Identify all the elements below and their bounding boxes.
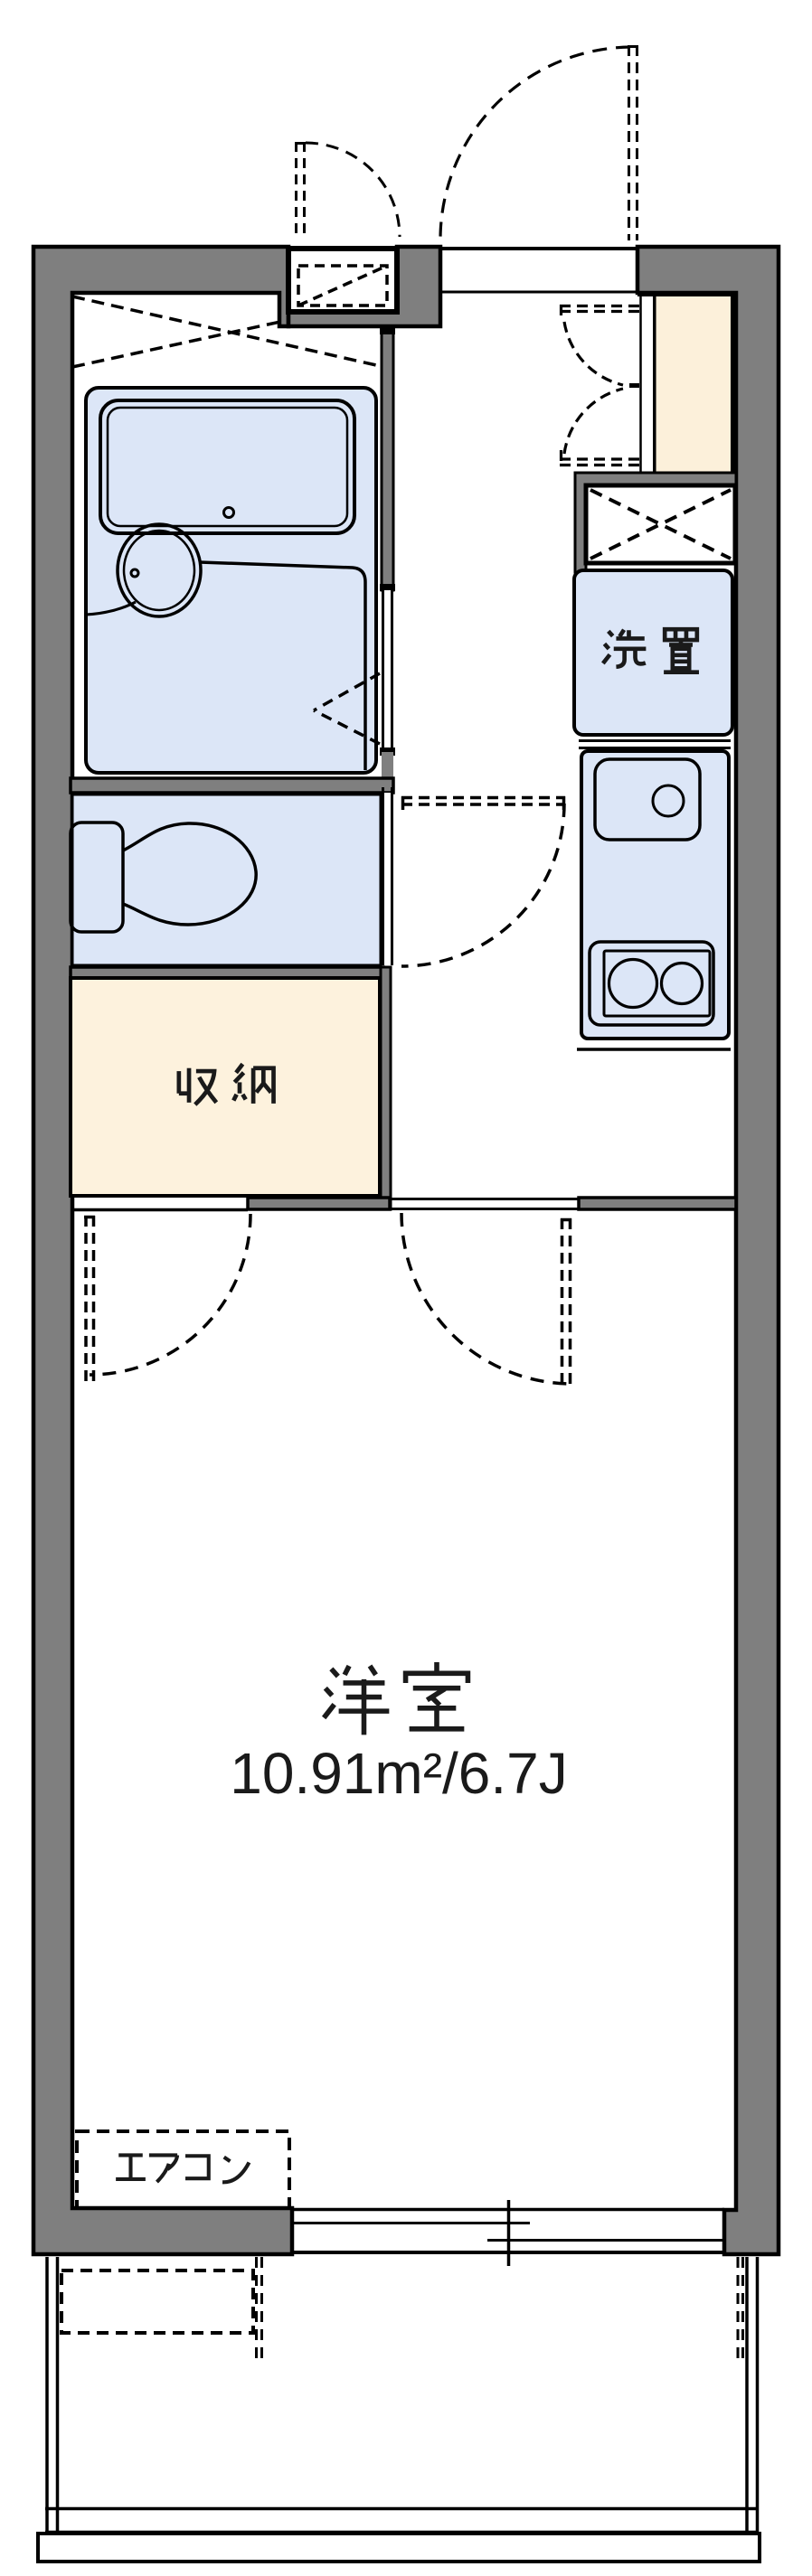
svg-text:10.91m²/6.7J: 10.91m²/6.7J	[230, 1741, 568, 1806]
